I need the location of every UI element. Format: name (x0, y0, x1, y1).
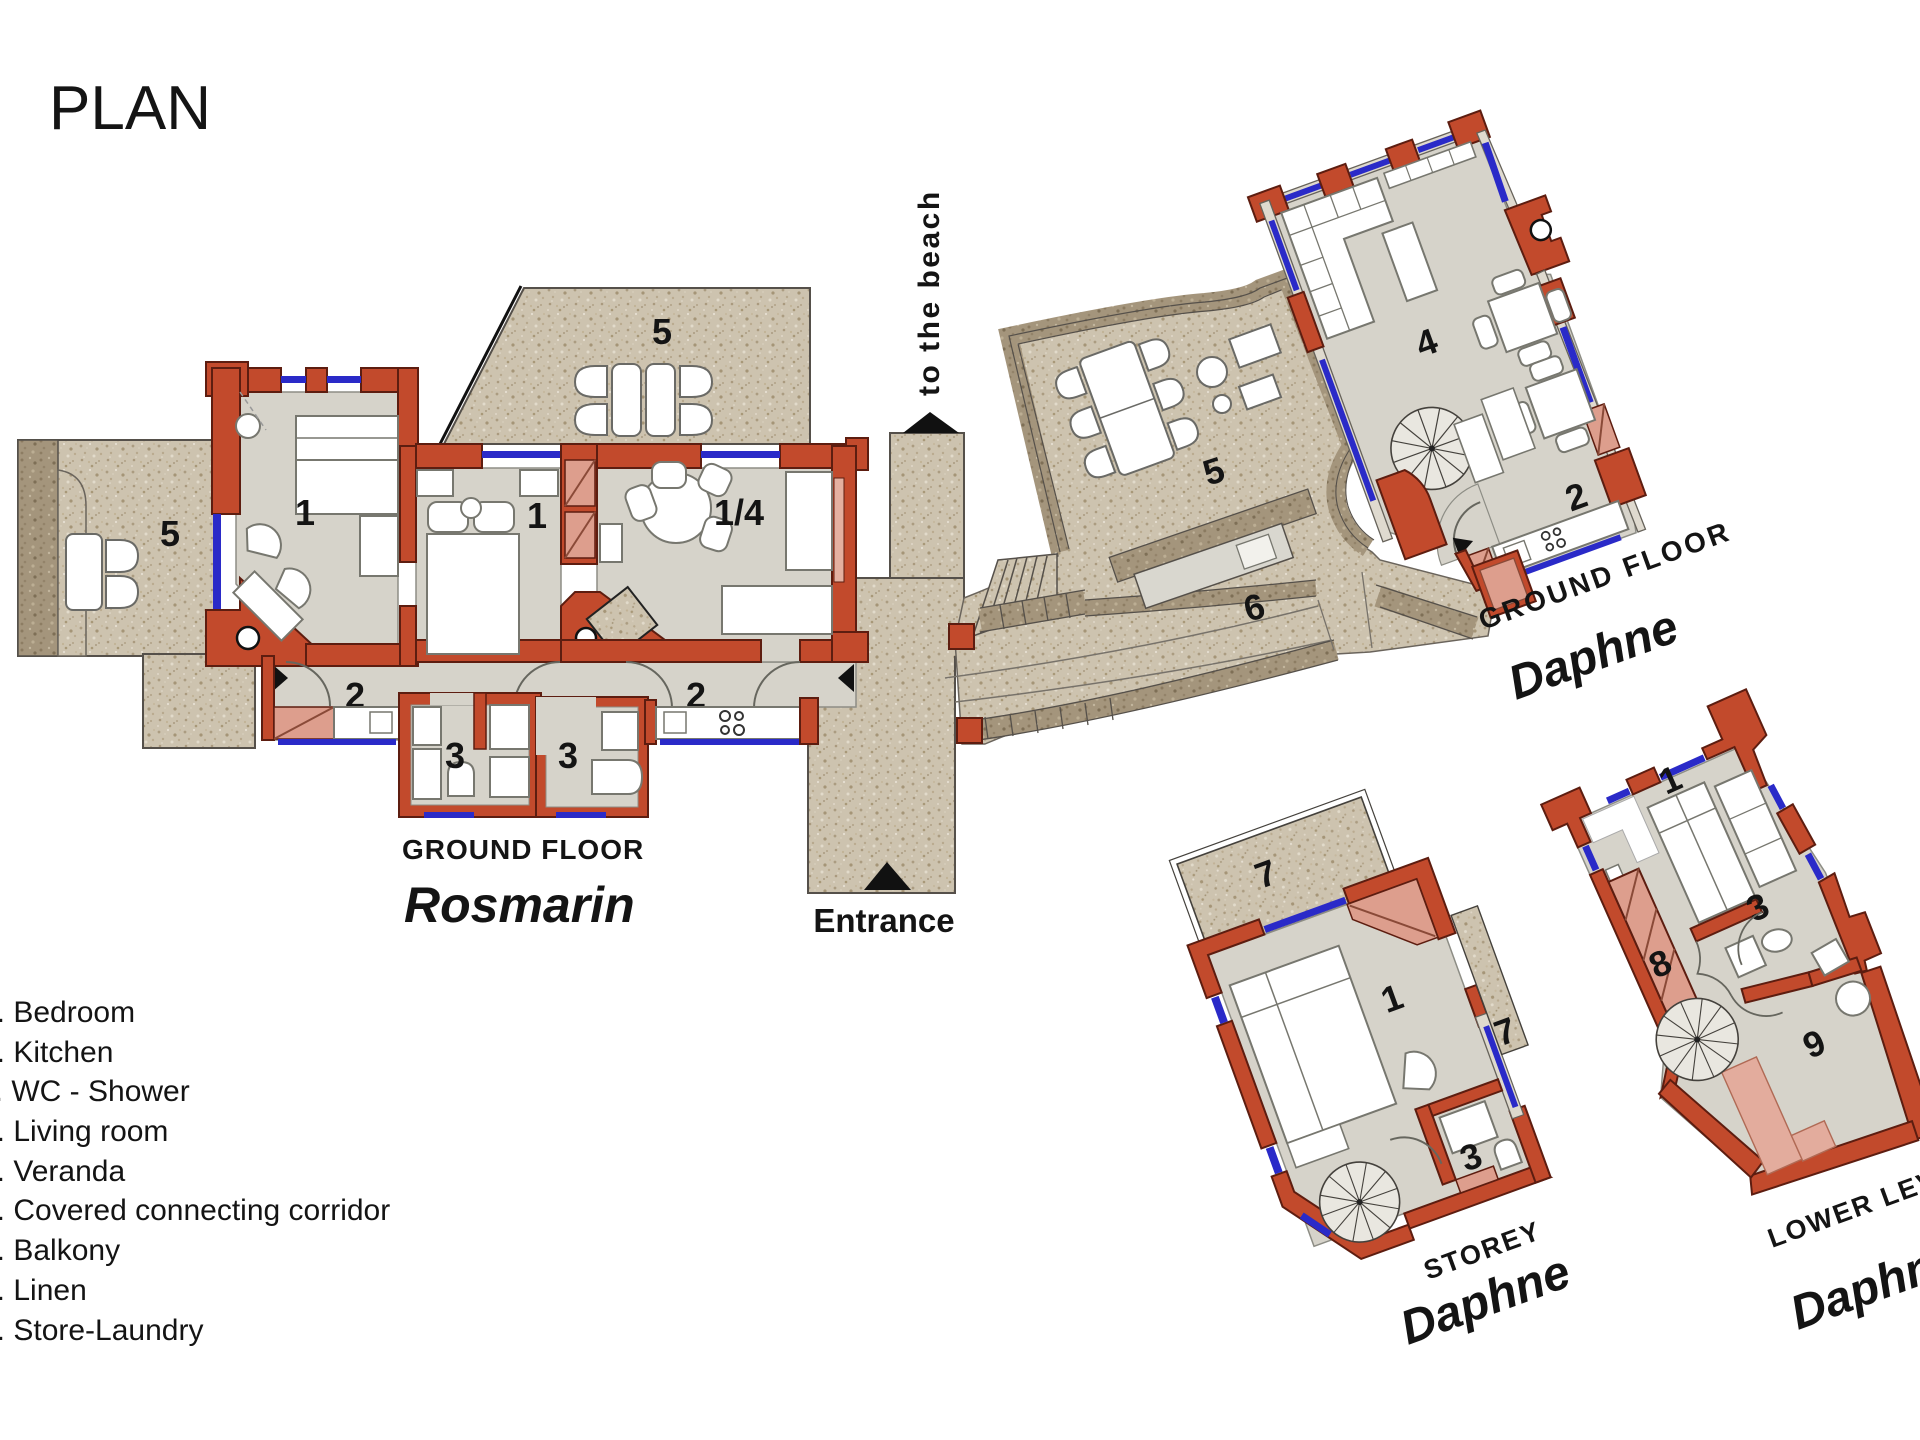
svg-text:1/4: 1/4 (714, 492, 764, 533)
svg-text:PLAN: PLAN (49, 74, 211, 143)
svg-text:8. Linen: 8. Linen (0, 1274, 87, 1307)
svg-text:Entrance: Entrance (813, 902, 954, 939)
svg-text:2. Kitchen: 2. Kitchen (0, 1036, 113, 1069)
svg-text:3: 3 (558, 735, 578, 776)
svg-text:5: 5 (652, 311, 672, 352)
svg-text:5: 5 (160, 513, 180, 554)
svg-text:4. Living room: 4. Living room (0, 1115, 168, 1148)
svg-text:5. Veranda: 5. Veranda (0, 1155, 125, 1188)
svg-text:3. WC - Shower: 3. WC - Shower (0, 1075, 190, 1108)
svg-text:7. Balkony: 7. Balkony (0, 1234, 120, 1267)
svg-text:1: 1 (295, 492, 315, 533)
svg-text:3: 3 (445, 735, 465, 776)
svg-text:1: 1 (527, 495, 547, 536)
svg-text:6. Covered connecting corridor: 6. Covered connecting corridor (0, 1194, 390, 1227)
svg-text:to the beach: to the beach (913, 189, 946, 396)
svg-text:Rosmarin: Rosmarin (404, 877, 635, 933)
svg-text:9. Store-Laundry: 9. Store-Laundry (0, 1314, 203, 1347)
svg-text:1. Bedroom: 1. Bedroom (0, 996, 135, 1029)
svg-text:GROUND FLOOR: GROUND FLOOR (402, 834, 644, 865)
